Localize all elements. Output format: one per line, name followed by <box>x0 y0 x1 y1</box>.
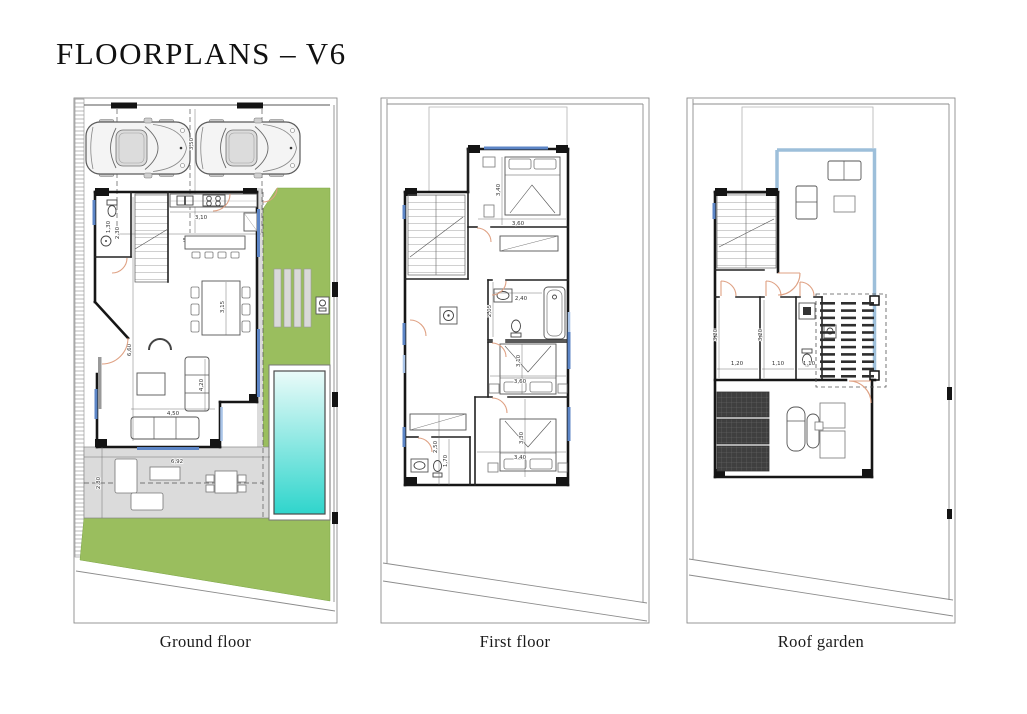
coffee-table-icon <box>137 373 165 395</box>
bar-stool-icon <box>192 252 200 258</box>
dimension-label: 3,15 <box>220 300 226 313</box>
living-room-furniture <box>98 339 209 439</box>
page-title: FLOORPLANS – V6 <box>56 36 347 72</box>
kitchen-counter <box>170 194 257 207</box>
storage-rooms <box>799 303 836 366</box>
dimension-label: 2,05 <box>487 304 493 317</box>
bar-stool-icon <box>205 252 213 258</box>
bathroom2-door-arc <box>418 438 432 452</box>
kitchen-island <box>185 236 245 258</box>
pergola-slats <box>820 302 874 378</box>
plot-line-slant <box>383 563 647 603</box>
toilet-icon <box>433 461 442 478</box>
dimension-label: 2,80 <box>96 476 102 489</box>
boundary-marker <box>332 282 338 297</box>
dimension-label: 3,60 <box>512 221 525 227</box>
closet-icon <box>410 414 466 430</box>
dimension-label: 2,40 <box>515 296 528 302</box>
bedroom1-door-arc <box>477 228 491 242</box>
bed-icon <box>500 419 556 471</box>
bathtub-icon <box>544 287 565 339</box>
outdoor-chair-icon <box>815 422 823 430</box>
roof-tables <box>815 403 845 458</box>
solar-panels <box>717 392 769 471</box>
outdoor-table-icon <box>150 467 180 480</box>
sink-icon <box>494 289 512 302</box>
corridor-door-arc <box>778 273 800 295</box>
sink-icon <box>411 459 428 472</box>
outdoor-sofa-icon <box>131 493 163 510</box>
lounger-icon <box>787 407 819 451</box>
dimension-label: 3,10 <box>516 354 522 367</box>
nightstand-icon <box>558 463 567 472</box>
sofa-icon <box>185 357 209 411</box>
pool <box>269 365 330 520</box>
boundary-marker <box>332 512 338 524</box>
plot-line-slant <box>689 559 953 600</box>
glass-balustrade <box>777 150 879 380</box>
bedroom1 <box>468 157 568 251</box>
outdoor-table-icon <box>834 196 855 212</box>
bathroom1 <box>488 280 568 340</box>
dimension-label: 3,40 <box>514 455 527 461</box>
outdoor-sofa-icon <box>828 161 861 180</box>
store2-door-arc <box>766 281 781 296</box>
dimension-label: 4,50 <box>167 411 180 417</box>
dimension-label: 1,10 <box>803 361 816 367</box>
toilet-icon <box>511 320 521 337</box>
boundary-marker <box>947 509 952 519</box>
dimension-label: 4,20 <box>199 378 205 391</box>
ground-floor-plan: 3,50 5,60 <box>73 97 338 625</box>
armchair-icon <box>149 339 171 350</box>
outdoor-table-icon <box>820 403 845 428</box>
dimension-label: 3,20 <box>758 328 764 341</box>
outdoor-chair-icon <box>238 475 246 482</box>
dimension-label: 6,60 <box>127 343 133 356</box>
dimension-label: 2,30 <box>115 226 121 239</box>
dimension-label: 3,10 <box>195 215 208 221</box>
outdoor-chair-icon <box>238 485 246 492</box>
sofa-icon <box>131 417 199 439</box>
store1-door-arc <box>721 281 736 296</box>
dimension-label: 1,30 <box>106 220 112 233</box>
water-heater-icon <box>799 303 815 319</box>
bedroom2 <box>488 342 568 397</box>
stairs-icon <box>717 194 776 268</box>
terrace-area <box>84 447 270 518</box>
dimension-label: 1,70 <box>443 454 449 467</box>
wardrobe-icon <box>500 236 558 251</box>
outdoor-chair-icon <box>206 475 214 482</box>
outdoor-sofa-icon <box>115 459 137 493</box>
first-floor-plan: 3,40 3,60 2,05 2,40 <box>380 97 650 625</box>
caption-ground-floor: Ground floor <box>73 632 338 654</box>
nightstand-icon <box>488 463 498 472</box>
boundary-marker <box>332 392 338 407</box>
wc-door-arc <box>112 258 127 273</box>
dimension-label: 3,40 <box>496 183 502 196</box>
outdoor-chair-icon <box>206 485 214 492</box>
bedroom3-door-arc <box>492 398 507 413</box>
caption-first-floor: First floor <box>380 632 650 654</box>
bed-icon <box>505 157 560 215</box>
stairs-icon <box>405 149 468 279</box>
dimension-label: 3,30 <box>519 431 525 444</box>
floorplans-sheet: FLOORPLANS – V6 <box>0 0 1027 714</box>
bar-stool-icon <box>218 252 226 258</box>
garden-bottom <box>80 518 330 601</box>
dimension-label: 1,10 <box>772 361 785 367</box>
fridge-icon <box>244 213 257 231</box>
dimension-label: 3,50 <box>189 137 195 150</box>
caption-roof-garden: Roof garden <box>686 632 956 654</box>
nightstand-icon <box>483 157 495 167</box>
wc-door-arc <box>800 282 814 296</box>
bbq-icon <box>316 297 329 314</box>
dimension-label: 1,20 <box>731 361 744 367</box>
roof-garden-plan: 3,20 1,20 3,20 1,10 1,10 <box>686 97 956 625</box>
nightstand-icon <box>489 384 499 393</box>
plot-line-slant <box>383 581 647 621</box>
outdoor-table-icon <box>215 471 237 493</box>
tv-icon <box>484 205 494 217</box>
boundary-wall-strip <box>75 99 84 557</box>
entrance-door-arc <box>102 338 128 364</box>
terrace-door-arc <box>849 381 871 403</box>
bed-icon <box>500 344 556 394</box>
dimension-label: 3,20 <box>713 328 719 341</box>
outdoor-table-icon <box>820 431 845 458</box>
hall-door-arc <box>410 320 426 336</box>
tv-icon <box>98 357 102 409</box>
dimension-label: 3,60 <box>514 379 527 385</box>
outdoor-sofa-icon <box>796 186 817 219</box>
plot-line-slant <box>689 575 953 616</box>
nightstand-icon <box>558 384 567 393</box>
washbasin-icon <box>101 236 111 246</box>
dimension-label: 2,50 <box>433 440 439 453</box>
washing-machine-icon <box>440 307 457 324</box>
roof-terrace-furniture <box>796 161 861 219</box>
bar-stool-icon <box>231 252 239 258</box>
dimension-label: 6,92 <box>171 459 183 465</box>
wc-room <box>95 192 131 257</box>
stairs-icon <box>135 192 168 282</box>
boundary-marker <box>947 387 952 400</box>
toilet-icon <box>107 200 117 217</box>
